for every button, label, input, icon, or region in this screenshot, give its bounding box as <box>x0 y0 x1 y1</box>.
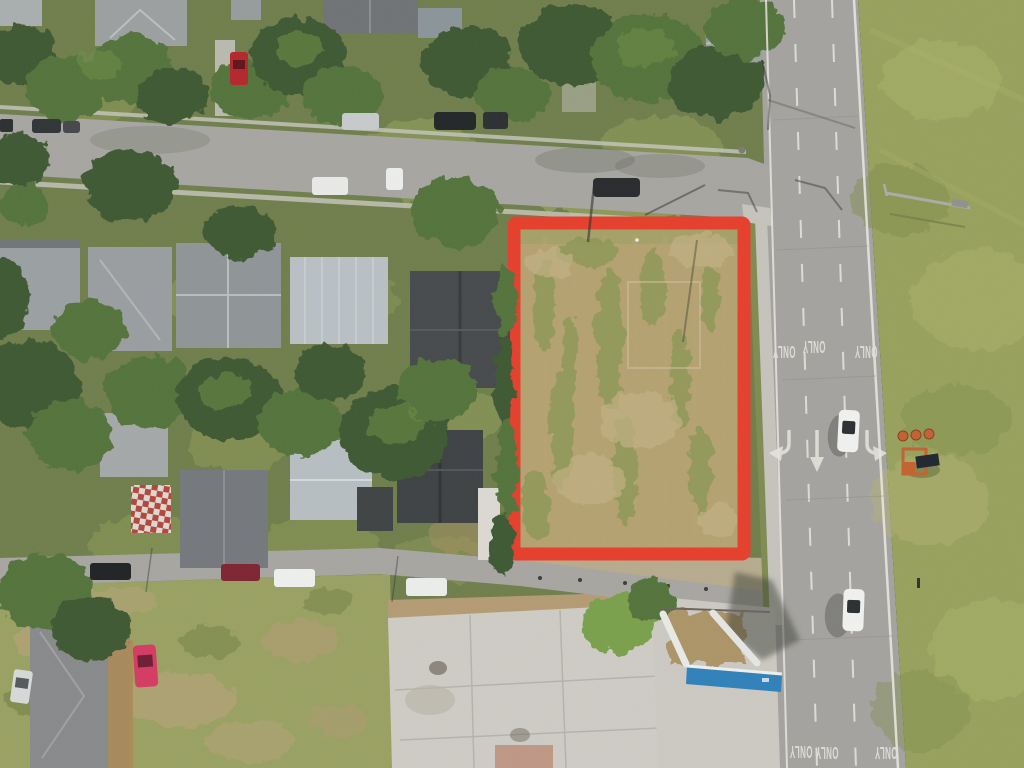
aerial-photo-stage: ONLY ONLY ONLY ONLY ONLY ONLY <box>0 0 1024 768</box>
aerial-photo: ONLY ONLY ONLY ONLY ONLY ONLY <box>0 0 1024 768</box>
photo-grain-overlay <box>0 0 1024 768</box>
